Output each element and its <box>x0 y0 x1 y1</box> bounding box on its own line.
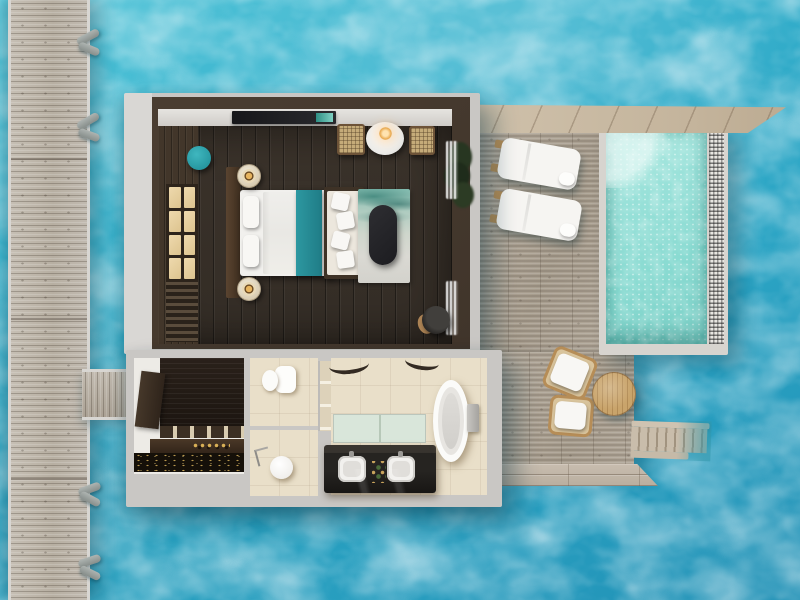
water-steps <box>630 419 711 462</box>
marble-counter <box>134 453 244 472</box>
tv-console <box>232 111 336 124</box>
wardrobe-bay <box>160 358 244 428</box>
shoji-wardrobe-panels <box>166 184 198 282</box>
double-vanity <box>324 445 436 493</box>
deck-round-table <box>592 372 636 416</box>
dressing-room <box>134 358 244 474</box>
deck-chair-cushion <box>549 352 591 393</box>
hat-crown <box>422 306 450 334</box>
toilet-room <box>250 358 318 426</box>
glass-pane-divider <box>379 415 381 442</box>
steps-water-fade <box>676 420 711 461</box>
tub-floor-faucet <box>467 404 479 432</box>
oval-coffee-table <box>369 205 397 265</box>
nightstand-1 <box>237 164 261 188</box>
nightstand-2 <box>237 277 261 301</box>
lounger-roll-pillow <box>559 222 577 238</box>
bed-teal-runner <box>296 190 322 276</box>
bed-pillow <box>243 196 259 228</box>
plunge-pool <box>599 124 728 355</box>
teal-pouf <box>187 146 211 170</box>
shower-stool <box>270 456 293 479</box>
arch-decor-1 <box>328 354 370 376</box>
rattan-chair-1 <box>337 124 365 155</box>
rattan-chair-2 <box>409 126 435 155</box>
bedroom-block <box>124 93 480 354</box>
lounger-backrest-crease <box>522 194 531 231</box>
shower-fixture <box>254 446 272 466</box>
bathtub <box>433 380 469 462</box>
pool-mosaic-edge <box>709 132 724 344</box>
bench-pillow <box>336 250 355 269</box>
arch-decor-2 <box>404 352 440 373</box>
glass-partition <box>333 414 426 443</box>
main-bathroom <box>331 358 487 495</box>
pendant-lamp <box>379 127 392 140</box>
lounger-roll-pillow <box>558 171 576 187</box>
slatted-bench <box>160 426 244 438</box>
bed-headboard <box>226 167 240 298</box>
shower-room <box>250 430 318 496</box>
faucet-2 <box>398 451 403 457</box>
lounger-backrest-crease <box>522 143 531 180</box>
sheer-curtain-1 <box>446 141 458 199</box>
pool-water <box>606 132 707 344</box>
bench-pillow <box>330 191 350 211</box>
shelf-niche <box>318 361 331 431</box>
table-lamp <box>242 282 256 296</box>
bench-pillow <box>336 211 356 231</box>
tv-screen-accent <box>316 113 333 122</box>
bathtub-interior <box>442 393 460 449</box>
deck-chair-cushion <box>554 401 587 431</box>
jetty-boardwalk <box>8 0 90 600</box>
deck-chair-2 <box>547 394 594 438</box>
faucet-1 <box>349 451 354 457</box>
deck-edge-band <box>498 464 658 486</box>
toilet-tank <box>275 366 296 393</box>
wardrobe-slats <box>166 282 198 342</box>
perfume-bottles <box>192 441 230 450</box>
villa-floorplan-render <box>0 0 800 600</box>
connector-walkway <box>82 369 129 420</box>
sun-hat <box>420 306 450 336</box>
bed-pillow <box>243 235 259 267</box>
vanity-reflection <box>324 469 436 493</box>
toilet-bowl <box>262 370 278 391</box>
bathroom-block <box>126 350 502 507</box>
table-lamp <box>242 169 256 183</box>
